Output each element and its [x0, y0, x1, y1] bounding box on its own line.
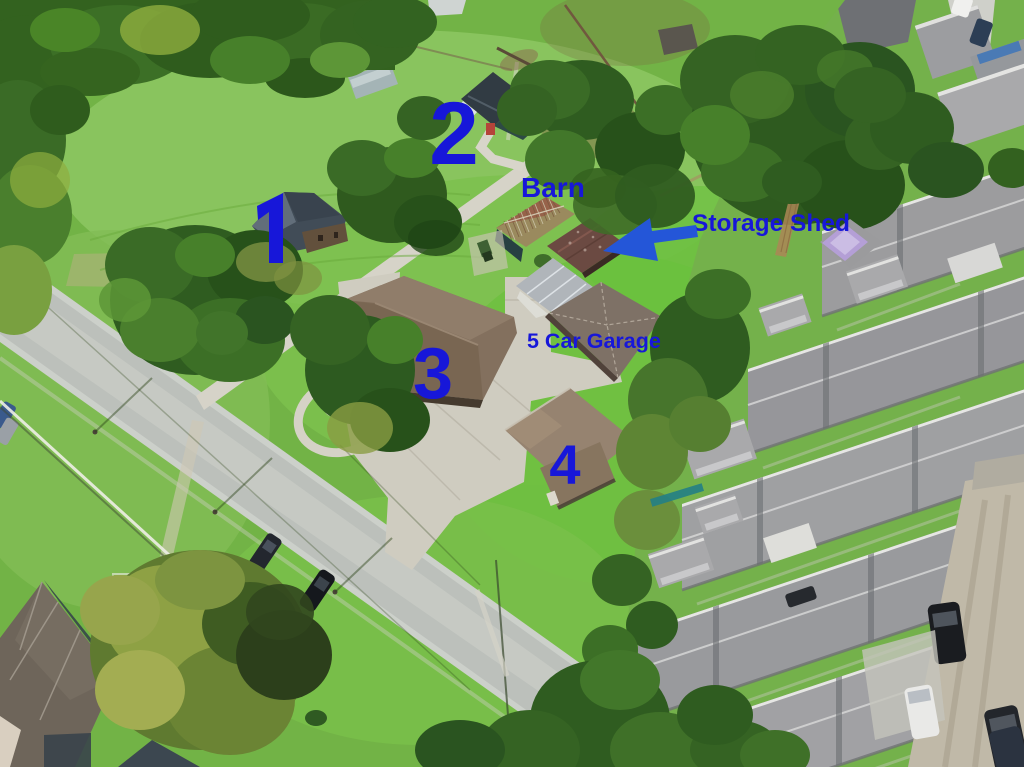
svg-text:3: 3 — [413, 334, 453, 414]
svg-text:Storage Shed: Storage Shed — [692, 210, 850, 237]
svg-text:2: 2 — [429, 83, 479, 183]
svg-text:5 Car Garage: 5 Car Garage — [527, 329, 661, 353]
svg-text:4: 4 — [549, 433, 580, 496]
svg-text:Barn: Barn — [521, 172, 585, 203]
